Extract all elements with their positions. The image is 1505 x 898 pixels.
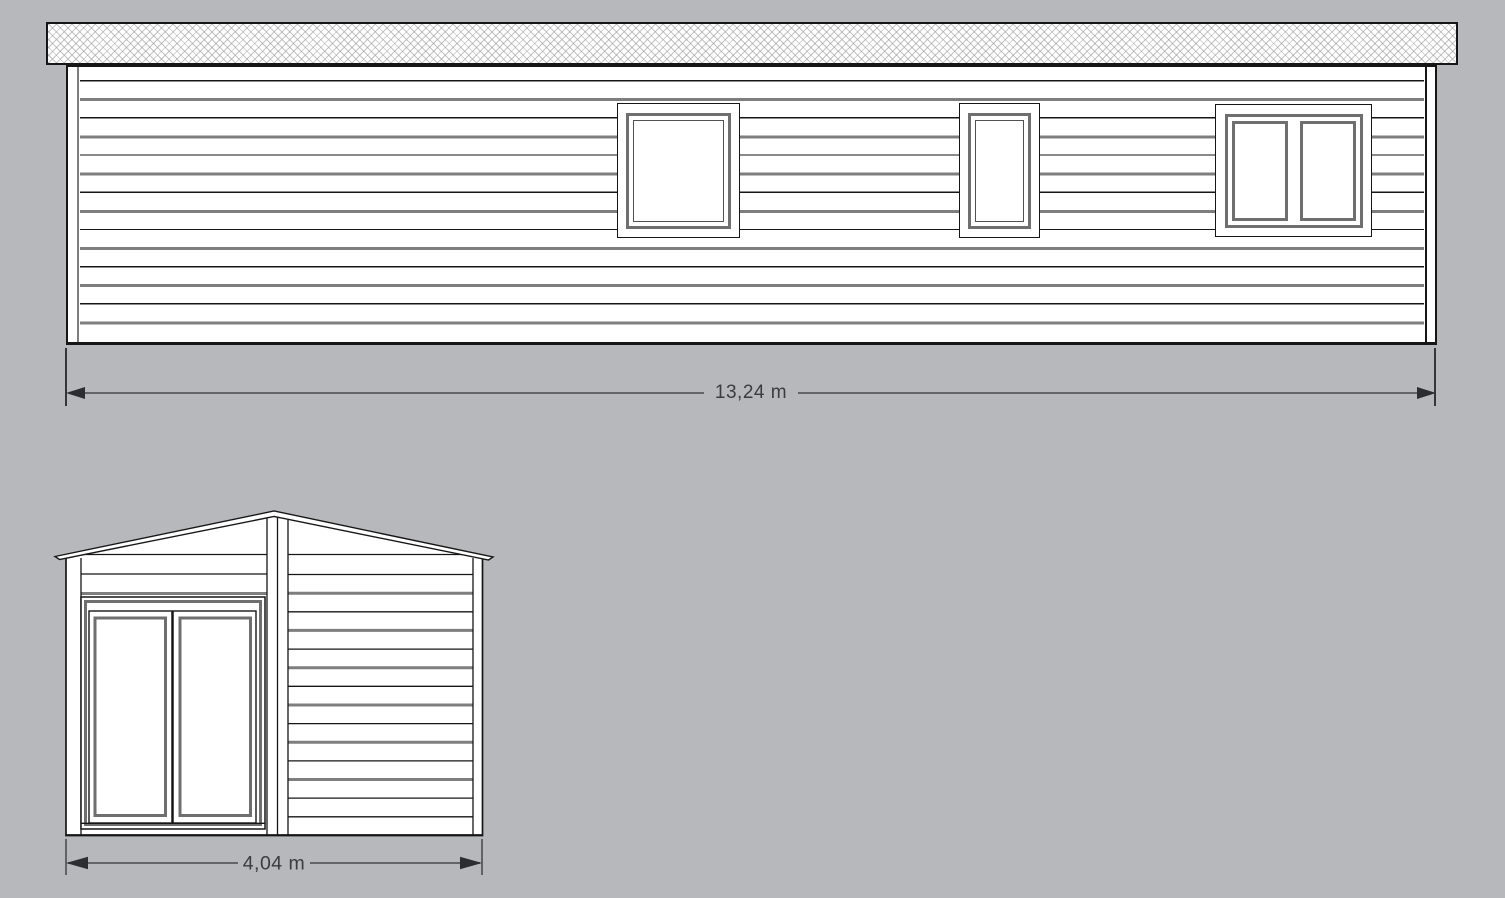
- window-center-pane: [975, 120, 1024, 222]
- window-right-sash-left: [1232, 121, 1288, 221]
- dimension-line-segment: [85, 392, 704, 394]
- dim-arrowhead-left-icon: [66, 387, 85, 399]
- dim-arrowhead-right-icon: [460, 857, 482, 869]
- window-left: [617, 103, 740, 238]
- double-door: [81, 597, 265, 829]
- side-wall: [66, 65, 1437, 345]
- window-left-pane: [633, 120, 724, 222]
- window-right: [1215, 104, 1372, 237]
- dimension-width-side: 13,24 m: [66, 381, 1436, 405]
- roof-fascia-band: [46, 22, 1458, 65]
- corner-trim-left: [77, 67, 79, 342]
- corner-trim-right: [1425, 67, 1427, 342]
- door-glass-right: [180, 618, 251, 816]
- dim-arrowhead-right-icon: [1417, 387, 1436, 399]
- door-glass-left: [95, 618, 166, 816]
- dimension-line-segment: [798, 392, 1417, 394]
- side-elevation: 13,24 m: [0, 0, 1505, 440]
- gable-elevation: 4,04 m: [40, 500, 510, 890]
- window-left-frame: [626, 113, 731, 229]
- center-corner-board: [267, 514, 289, 835]
- window-center: [959, 103, 1040, 238]
- window-center-frame: [968, 113, 1031, 229]
- window-right-frame: [1225, 114, 1363, 228]
- dimension-width-gable: 4,04 m: [66, 839, 482, 875]
- window-right-sash-right: [1300, 121, 1356, 221]
- gable-dimension-label: 4,04 m: [243, 853, 306, 875]
- dim-arrowhead-left-icon: [66, 857, 88, 869]
- side-dimension-label: 13,24 m: [704, 382, 798, 404]
